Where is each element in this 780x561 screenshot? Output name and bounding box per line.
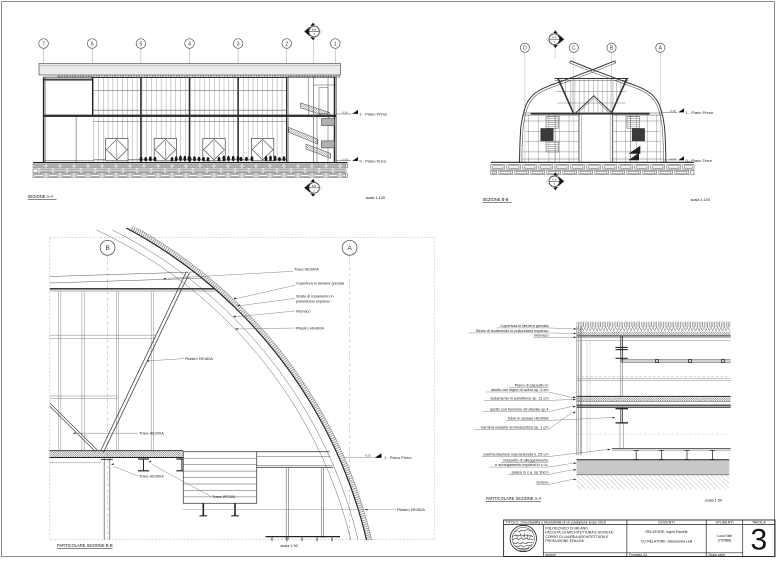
svg-text:2: 2 [285,41,288,47]
svg-text:+0,00: +0,00 [342,158,349,162]
svg-text:D: D [523,46,527,52]
svg-text:assito con funzione struttural: assito con funzione strutturale sp.4 [490,407,549,411]
svg-text:DOCENTI: DOCENTI [658,521,674,525]
svg-text:trave in acciaio HE300A: trave in acciaio HE300A [508,416,549,420]
svg-text:6: 6 [91,41,94,47]
svg-text:Copertura in lamiera grecata: Copertura in lamiera grecata [500,324,549,328]
svg-text:0 - Piano Terra: 0 - Piano Terra [686,158,713,163]
svg-text:+5,00: +5,00 [364,454,371,458]
svg-text:Trave HE300A: Trave HE300A [294,267,319,271]
svg-text:scala 1:50: scala 1:50 [705,499,722,503]
svg-text:(797888): (797888) [718,539,732,543]
svg-text:terreno: terreno [536,480,548,484]
svg-text:Scala varie: Scala varie [708,553,725,557]
svg-text:platea in c.a. sp 30cm: platea in c.a. sp 30cm [512,470,549,474]
svg-text:A-A: A-A [552,177,557,181]
svg-text:B-B: B-B [312,184,317,188]
svg-text:A-A: A-A [552,35,557,39]
svg-text:3: 3 [237,41,240,47]
svg-text:STUDENTI: STUDENTI [716,521,734,525]
svg-text:4: 4 [188,41,191,47]
svg-text:1 - Piano Primo: 1 - Piano Primo [360,111,388,116]
svg-text:+5,00: +5,00 [670,109,677,113]
svg-text:scala 1:100: scala 1:100 [366,196,385,200]
svg-text:Pilastro HE180A: Pilastro HE180A [185,357,213,361]
svg-text:Pilastro HE280A: Pilastro HE280A [397,508,425,512]
svg-text:1: 1 [334,41,337,47]
svg-text:0 - Piano Terra: 0 - Piano Terra [360,159,387,164]
svg-text:scala 1:50: scala 1:50 [281,544,298,548]
svg-text:Trave HE300A: Trave HE300A [139,474,164,478]
svg-text:assito con legno di acero sp.: assito con legno di acero sp. 3 cm [491,388,548,392]
svg-text:MILANO: MILANO [519,550,528,553]
svg-text:Formato: A1: Formato: A1 [629,553,648,557]
svg-text:+5,00: +5,00 [342,111,349,115]
svg-text:+0,00: +0,00 [670,157,677,161]
svg-text:poliuretano espanso: poliuretano espanso [296,299,330,303]
svg-text:Pilastro HE400A: Pilastro HE400A [296,326,324,330]
svg-text:Luca Sisti: Luca Sisti [717,534,732,538]
svg-text:PARTICOLARE SEZIONE B-B: PARTICOLARE SEZIONE B-B [57,543,113,548]
svg-text:TITOLO: Smontabilità e Montabi: TITOLO: Smontabilità e Montabilità di un… [506,521,606,525]
svg-text:Strato di isolamento in poliur: Strato di isolamento in poliuretano espa… [476,329,549,333]
svg-text:Strato di isolamento in: Strato di isolamento in [296,294,334,298]
svg-text:Trave HE200A: Trave HE200A [139,431,164,435]
svg-text:barriera isolante termoacustic: barriera isolante termoacustica sp. 1 cm [481,425,548,429]
svg-text:e annegamento impianti in c.l.: e annegamento impianti in c.l.s. [495,463,548,467]
svg-text:Copertura in lamiera grecata: Copertura in lamiera grecata [296,281,345,285]
svg-text:CO-RELATORE: Alessandra Lelli: CO-RELATORE: Alessandra Lelli [641,540,693,544]
svg-text:B: B [105,245,109,252]
svg-text:A: A [347,245,352,252]
svg-text:1 - Piano Primo: 1 - Piano Primo [384,455,412,460]
svg-text:1 - Piano Primo: 1 - Piano Primo [686,110,714,115]
svg-text:Intonaco: Intonaco [296,309,311,313]
svg-text:C: C [572,46,576,52]
svg-text:SEZIONE B-B: SEZIONE B-B [483,197,509,202]
svg-text:PARTICOLARE SEZIONE A-A: PARTICOLARE SEZIONE A-A [486,496,542,501]
svg-text:scala 1:100: scala 1:100 [691,198,710,202]
svg-text:5: 5 [140,41,143,47]
svg-text:Trave IPE200: Trave IPE200 [212,495,235,499]
svg-text:Intonaco: Intonaco [534,334,549,338]
svg-text:7: 7 [42,41,45,47]
svg-text:3: 3 [750,524,767,557]
svg-text:isolamento in polistirene sp.: isolamento in polistirene sp. 11 cm [491,396,549,400]
svg-text:PRODUZIONE EDILIZIA: PRODUZIONE EDILIZIA [545,539,584,543]
svg-text:Piano di calpestio in: Piano di calpestio in [515,383,549,387]
svg-text:SEZIONE A-A: SEZIONE A-A [28,194,54,199]
svg-text:B-B: B-B [312,28,317,32]
svg-text:massetto di alleggerimento: massetto di alleggerimento [503,459,548,463]
svg-text:sezioni: sezioni [545,553,556,557]
svg-text:RELATORE: Ingrid Paoletti: RELATORE: Ingrid Paoletti [646,530,688,534]
svg-text:pavimentazione sopraelevata h.: pavimentazione sopraelevata h. 25 cm [483,453,548,457]
